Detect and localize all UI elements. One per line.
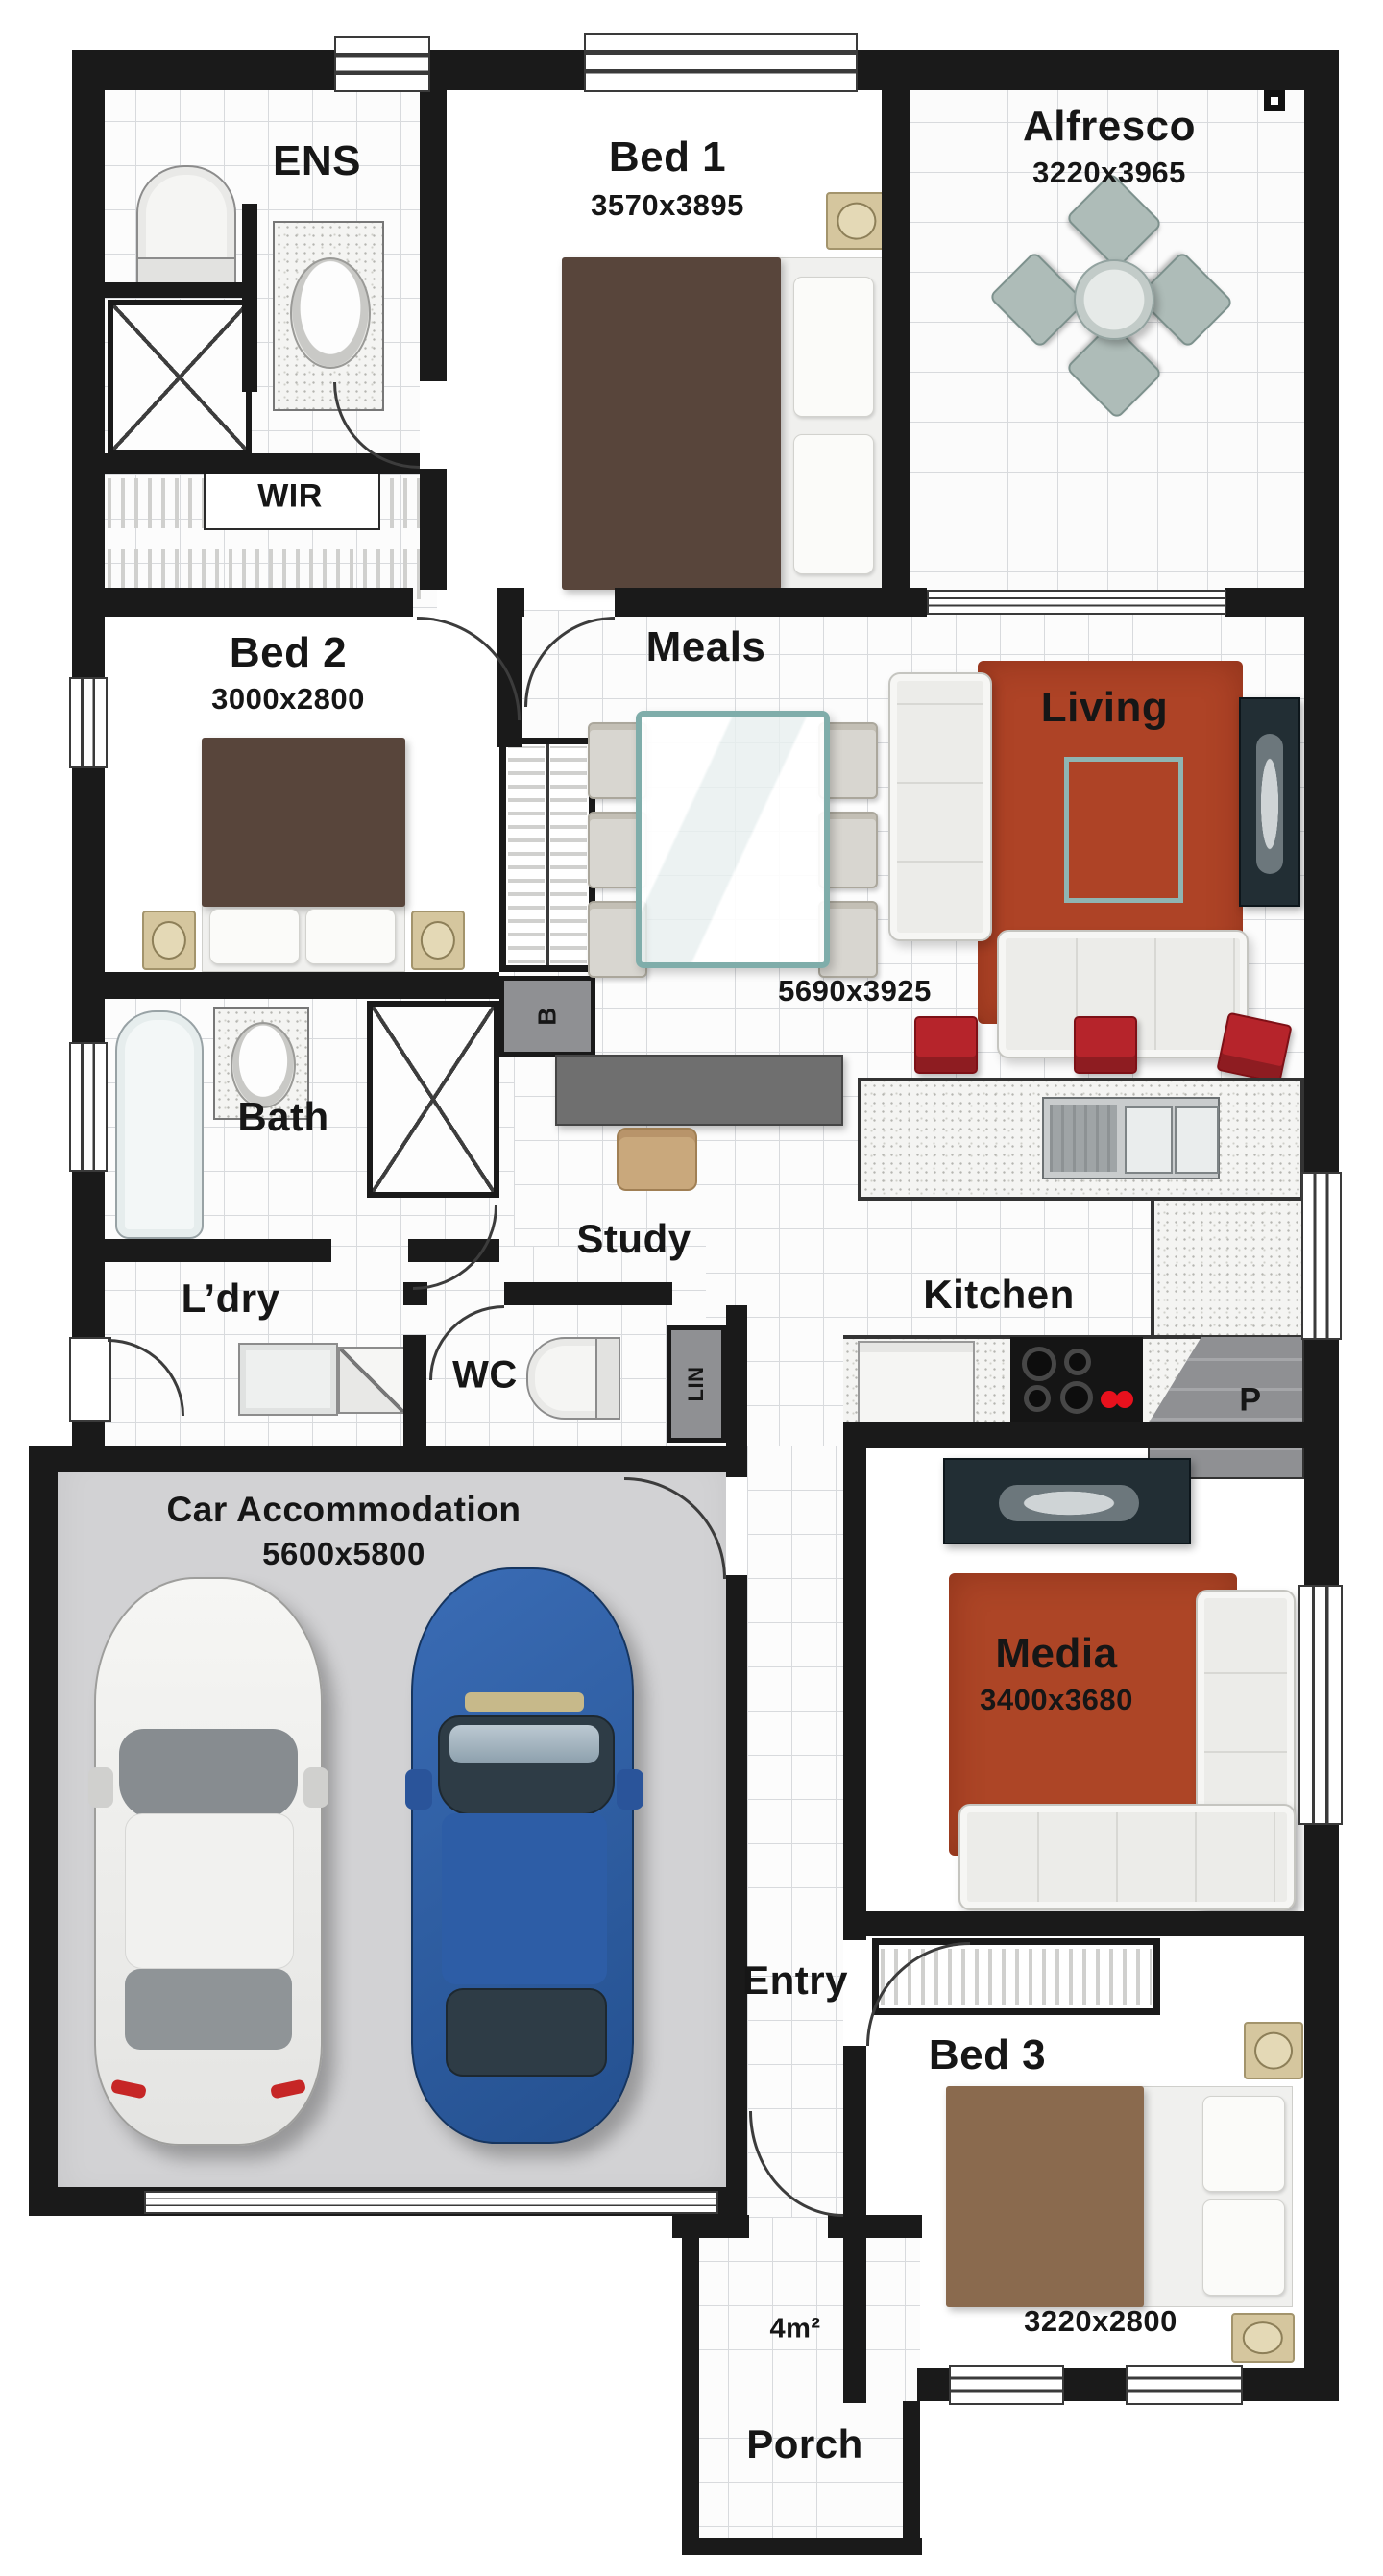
wall-porch-right [903,2401,920,2555]
bed3-bed [946,2086,1144,2307]
window [949,2365,1064,2405]
door-gap [69,1337,111,1422]
wall-bed2-bath [91,972,499,999]
label-garage: Car Accommodation [167,1490,522,1530]
floor-plan: ENS Bed 1 3570x3895 Alfresco 3220x3965 W… [0,0,1383,2576]
wall-garage-left [29,1446,58,2216]
living-coffee-table [1064,757,1183,903]
bed2-side-table [142,911,196,970]
bed2-pillow [209,909,300,964]
wall-porch-top [828,2215,922,2238]
dims-bed3: 3220x2800 [1024,2304,1177,2339]
bath-shower [367,1001,499,1198]
kitchen-sink [1042,1097,1220,1179]
window [584,33,858,92]
white-car [94,1577,323,2146]
bed2-side-table [411,911,465,970]
wall-row1-post [497,588,524,617]
label-wc: WC [452,1354,518,1397]
label-study: Study [576,1216,691,1262]
label-bed1: Bed 1 [609,134,726,182]
label-porch: Porch [746,2421,863,2467]
wall-entry-left [726,1305,747,2218]
ens-shower [108,300,252,455]
wall-ens-wir [91,453,423,474]
label-bath: Bath [237,1094,328,1140]
laundry-bench [238,1343,338,1416]
wall-ens-bed1 [420,469,447,590]
wall [91,282,255,298]
wall-media-bed3 [866,1911,1314,1936]
window [1298,1585,1343,1825]
wall-bath-laundry [91,1239,331,1262]
robe-divider [546,744,549,965]
bed1-bed [562,257,781,590]
dims-bed2: 3000x2800 [211,682,365,717]
dims-alfresco: 3220x3965 [1032,156,1186,190]
wall-porch-bottom [682,2538,922,2555]
wall-porch-top [672,2215,749,2238]
wall-kitchen-media [843,1422,1314,1448]
wall-row1-bottom [615,588,927,617]
wall-wc-top [504,1282,672,1305]
alfresco-table [1074,259,1154,340]
study-desk [555,1055,843,1126]
door-gap [420,381,447,469]
wall-row1-bottom [1225,588,1311,617]
wall-entry-right [843,1422,866,1940]
dims-media: 3400x3680 [980,1683,1133,1717]
bed2-bed [202,738,405,907]
label-wir: WIR [257,478,323,516]
laundry-tub [338,1347,405,1414]
fridge-space [858,1341,975,1423]
label-entry: Entry [742,1957,848,2004]
label-broom: B [533,1007,563,1025]
wall-porch-left [682,2217,699,2553]
label-living: Living [1041,684,1169,732]
bed1-pillow [793,277,874,417]
wall-bed1-alfresco [882,50,910,617]
bed2-pillow [305,909,396,964]
wall-ens-bed1 [420,50,447,381]
wall-laundry-wc [403,1335,426,1446]
label-media: Media [995,1630,1117,1678]
label-pantry: P [1239,1382,1261,1420]
kitchen-return-counter [1151,1201,1304,1337]
area-porch: 4m² [769,2314,820,2345]
kitchen-stool [914,1016,978,1074]
dims-garage: 5600x5800 [262,1536,425,1572]
bed3-pillow [1202,2096,1285,2192]
media-tv-unit [943,1458,1191,1544]
bed3-pillow [1202,2199,1285,2296]
label-linen: LIN [684,1367,709,1402]
window [334,36,430,92]
kitchen-stool [1074,1016,1137,1074]
dims-living: 5690x3925 [778,974,932,1009]
bed3-side-table [1231,2313,1295,2363]
label-alfresco: Alfresco [1023,103,1196,151]
bed1-side-table [826,192,887,250]
cooktop-icon [1010,1337,1143,1422]
label-kitchen: Kitchen [923,1272,1075,1318]
ens-sink-icon [290,257,371,369]
dims-bed1: 3570x3895 [591,188,744,223]
floor-porch [684,2217,920,2551]
bathtub-icon [115,1010,204,1239]
door-gap [726,1477,747,1575]
label-meals: Meals [646,623,766,671]
alfresco-vent-dot [1271,97,1278,105]
dining-table [636,711,830,968]
sliding-door [927,590,1226,615]
label-ens: ENS [273,137,361,185]
garage-door [144,2191,718,2214]
living-sofa [888,672,992,941]
study-chair [617,1128,697,1191]
wall-row1-bottom [91,588,413,617]
robe-hanging-clothes [550,746,587,963]
blue-car [411,1567,634,2144]
window [69,1042,108,1172]
bed3-side-table [1244,2022,1303,2079]
label-bed3: Bed 3 [929,2031,1046,2079]
label-bed2: Bed 2 [230,629,347,677]
media-sofa [958,1804,1296,1910]
wall-garage-top [29,1446,747,1472]
wc-cistern [595,1337,620,1420]
window [69,677,108,768]
window [1126,2365,1243,2405]
robe-hanging-clothes [508,746,545,963]
floor-entry [747,1446,843,2219]
bed1-pillow [793,434,874,574]
living-tv-unit [1239,697,1300,907]
window [1301,1172,1342,1340]
bed2-robe [499,738,595,972]
label-laundry: L’dry [182,1276,280,1322]
wall [242,204,257,392]
